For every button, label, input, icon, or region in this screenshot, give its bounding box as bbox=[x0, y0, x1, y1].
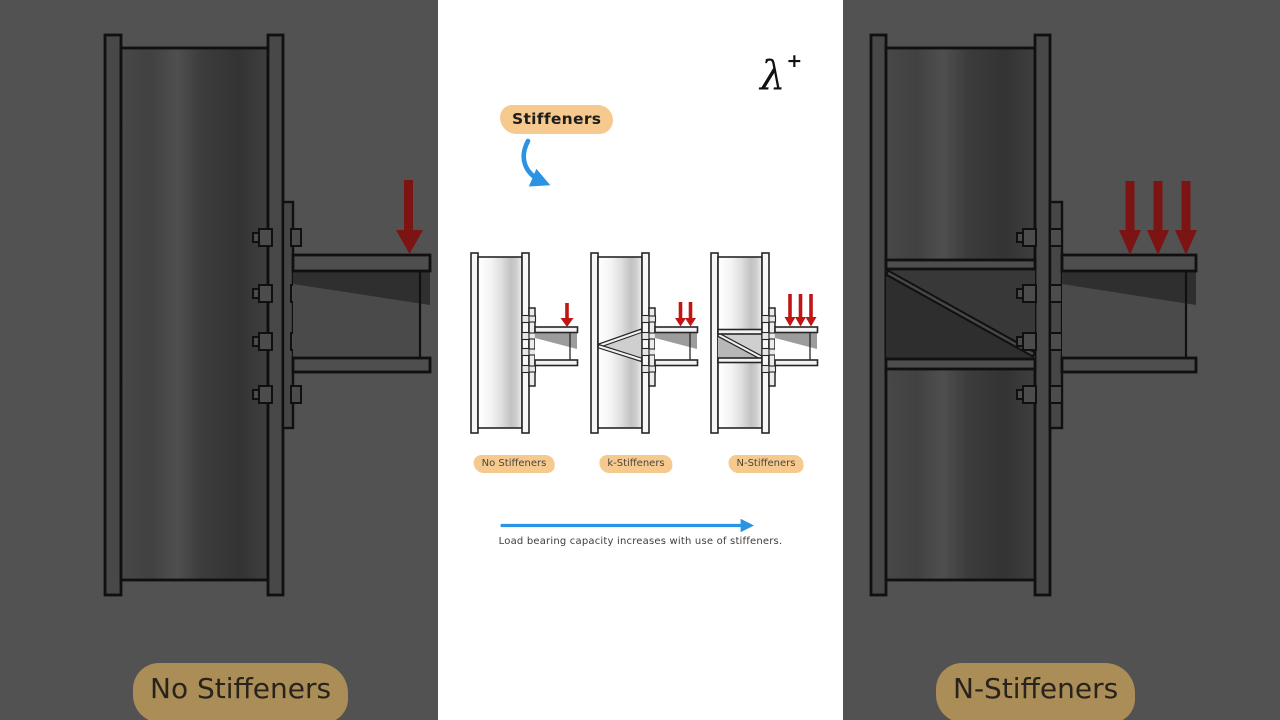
diagram-n-stiffeners bbox=[702, 248, 827, 443]
n-stiffeners bbox=[718, 330, 762, 363]
right-zoom-diagram-n-stiffeners bbox=[843, 0, 1280, 720]
label-n-stiffeners: N-Stiffeners bbox=[729, 455, 804, 473]
label-k-stiffeners: k-Stiffeners bbox=[599, 455, 672, 473]
center-panel: λ+ Stiffeners bbox=[438, 0, 843, 720]
highlight-blob: N-Stiffeners bbox=[936, 663, 1135, 720]
n-stiffeners bbox=[886, 260, 1035, 369]
column bbox=[105, 35, 283, 595]
video-frame: No Stiffeners bbox=[0, 0, 1280, 720]
load-arrow-icon bbox=[396, 180, 423, 254]
load-arrow-icon bbox=[561, 303, 574, 327]
beam bbox=[655, 327, 698, 366]
stiffeners-annotation: Stiffeners bbox=[500, 105, 613, 134]
left-zoom-diagram-no-stiffeners bbox=[0, 0, 437, 720]
beam bbox=[535, 327, 578, 366]
increase-arrow-icon bbox=[500, 518, 770, 534]
caption-text: Load bearing capacity increases with use… bbox=[438, 536, 843, 547]
diagram-k-stiffeners bbox=[582, 248, 707, 443]
lambda-glyph: λ bbox=[760, 53, 785, 99]
column bbox=[471, 253, 529, 433]
beam bbox=[775, 327, 818, 366]
curved-arrow-icon bbox=[512, 138, 568, 194]
load-arrow-icons bbox=[1119, 181, 1197, 255]
lambda-plus-logo: λ+ bbox=[760, 52, 802, 96]
beam bbox=[1062, 255, 1196, 372]
label-no-stiffeners: No Stiffeners bbox=[474, 455, 555, 473]
load-arrow-icons bbox=[675, 302, 696, 327]
right-panel-label: N-Stiffeners bbox=[936, 663, 1135, 720]
diagram-no-stiffeners bbox=[462, 248, 587, 443]
left-panel-label: No Stiffeners bbox=[133, 663, 348, 720]
plus-glyph: + bbox=[786, 50, 802, 72]
load-arrow-icons bbox=[785, 294, 817, 327]
highlight-blob: No Stiffeners bbox=[133, 663, 348, 720]
beam bbox=[293, 255, 430, 372]
